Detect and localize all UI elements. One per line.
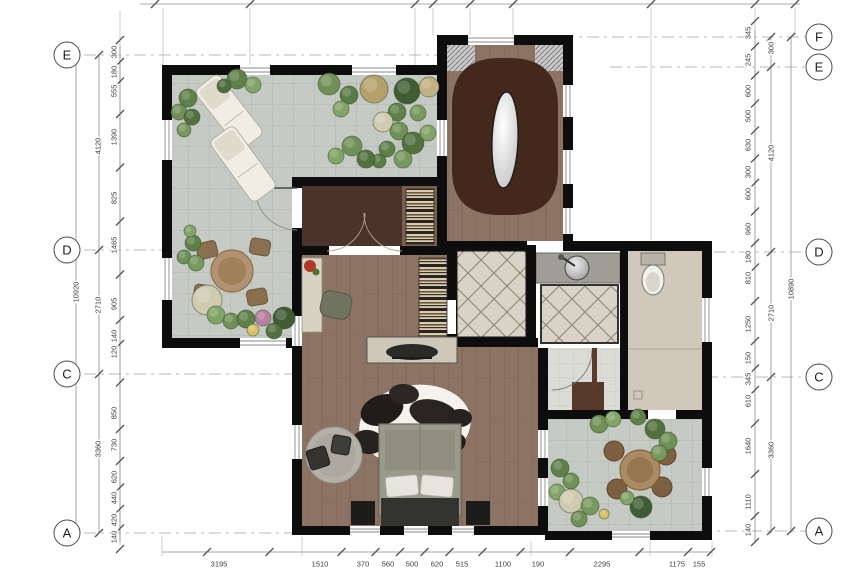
- plant: [223, 313, 239, 329]
- shower-door-leaf: [592, 348, 597, 388]
- dim-tick: [116, 545, 124, 553]
- plant: [394, 78, 420, 104]
- plant: [217, 79, 231, 93]
- plant: [651, 445, 667, 461]
- floor-plan-canvas: EDCAFEDCA3452456005006303006009601808101…: [0, 0, 860, 573]
- plant: [571, 511, 587, 527]
- plant: [360, 75, 388, 103]
- plant: [333, 101, 349, 117]
- vestibule-mat: [302, 186, 402, 246]
- plant: [410, 105, 426, 121]
- plant: [184, 225, 196, 237]
- sink: [565, 256, 589, 280]
- plant: [188, 255, 204, 271]
- plant: [420, 125, 436, 141]
- plant: [620, 491, 634, 505]
- plant: [318, 73, 340, 95]
- plant: [177, 123, 191, 137]
- shower-bench: [572, 382, 604, 410]
- plant: [563, 473, 579, 489]
- wc-floor: [628, 251, 702, 410]
- foyer-tile-floor: [456, 250, 527, 338]
- floor-plan-drawing: [0, 0, 860, 573]
- plant: [559, 489, 583, 513]
- bed: [379, 424, 461, 526]
- pouf: [331, 435, 352, 456]
- plant: [207, 306, 225, 324]
- plant: [245, 77, 261, 93]
- bath-mat: [541, 285, 618, 343]
- plant: [247, 324, 259, 336]
- plant: [266, 323, 282, 339]
- plant: [630, 409, 646, 425]
- pillow: [420, 475, 454, 498]
- nightstand: [466, 501, 490, 525]
- plant: [328, 148, 344, 164]
- nightstand: [351, 501, 375, 525]
- plant: [185, 235, 201, 251]
- pillow: [385, 475, 419, 498]
- plant: [184, 109, 200, 125]
- plant: [599, 509, 609, 519]
- plant: [605, 411, 621, 427]
- wardrobe-upper: [406, 189, 434, 244]
- plant: [357, 150, 375, 168]
- plant: [419, 77, 439, 97]
- plant: [394, 150, 412, 168]
- wardrobe-main: [419, 258, 447, 340]
- plant: [255, 310, 271, 326]
- toilet: [641, 253, 665, 295]
